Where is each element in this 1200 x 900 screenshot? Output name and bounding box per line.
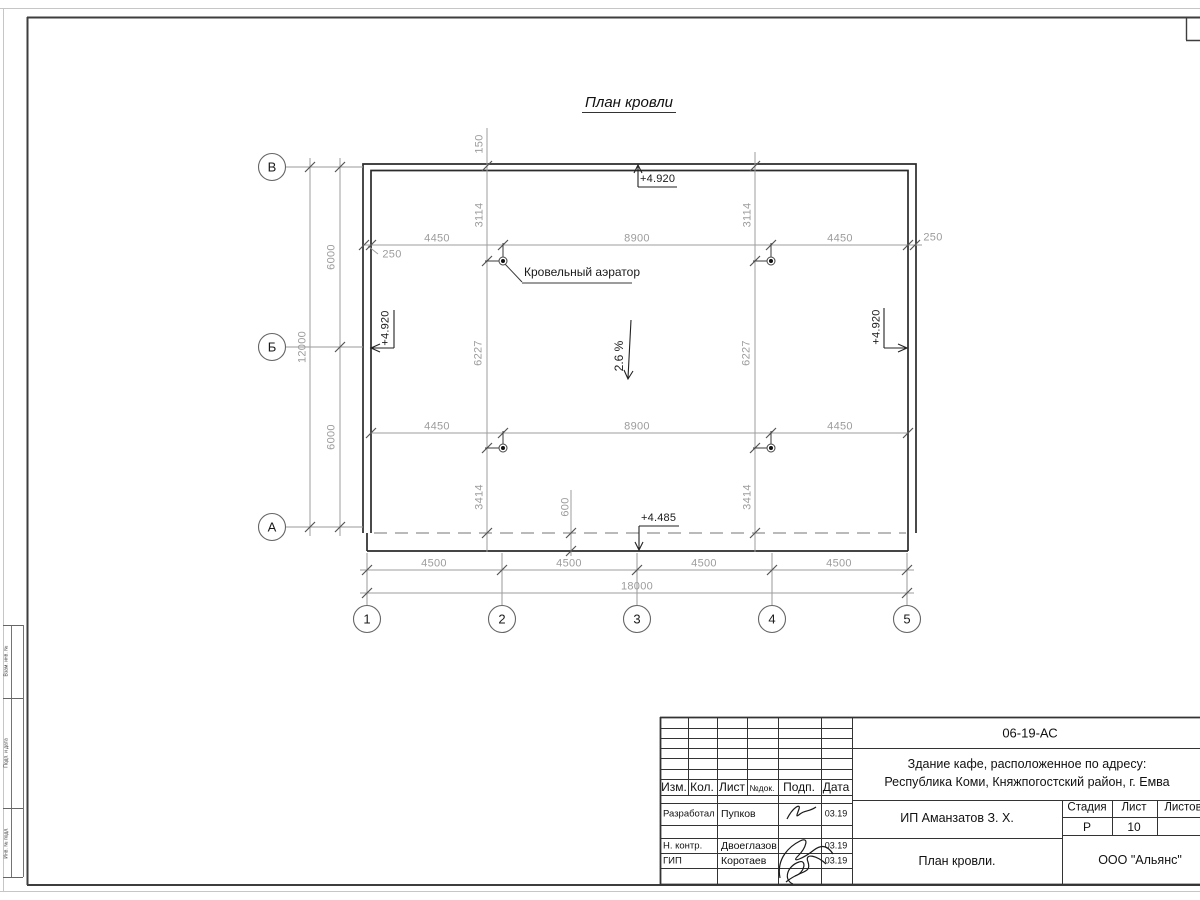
col-podp: Подп. [783, 781, 815, 793]
stage-value: Р [1083, 821, 1091, 833]
margin-stamp-label-3: Инв. № подл. [5, 827, 10, 858]
dim-top-4450-right: 4450 [827, 234, 853, 245]
sheet-number: 10 [1127, 821, 1140, 833]
dim-bottom-4500-3: 4500 [691, 559, 717, 570]
frame-corner-box [1186, 18, 1200, 41]
row-date-ncontrol: 03.19 [825, 842, 848, 851]
row-date-developed: 03.19 [825, 810, 848, 819]
dim-colR-3114: 3114 [743, 203, 754, 228]
axis-label-1: 1 [363, 613, 370, 626]
elevation-left: +4.920 [381, 310, 392, 345]
row-role-ncontrol: Н. контр. [663, 841, 702, 851]
col-kol: Кол. [690, 781, 714, 793]
row-name-gip: Коротаев [721, 856, 766, 867]
dim-top-250-left: 250 [382, 250, 401, 261]
dim-bottom-4500-2: 4500 [556, 559, 582, 570]
col-list: Лист [719, 781, 745, 793]
dim-bottom-4500-1: 4500 [421, 559, 447, 570]
project-address-line1: Здание кафе, расположенное по адресу: [908, 758, 1147, 771]
axis-label-a: А [268, 521, 277, 534]
client-name: ИП Аманзатов З. Х. [900, 812, 1014, 825]
dim-colR-6227: 6227 [742, 340, 753, 366]
axis-circles [259, 154, 921, 633]
col-ndok: №док. [750, 784, 775, 793]
dim-mid-8900: 8900 [624, 422, 650, 433]
roof-walls [363, 164, 916, 551]
axis-label-3: 3 [633, 613, 640, 626]
dim-total-18000: 18000 [621, 582, 653, 593]
dim-top-250-right: 250 [923, 233, 942, 244]
row-name-developed: Пупков [721, 809, 756, 820]
dim-colR-3414: 3414 [743, 484, 754, 510]
aerator-label: Кровельный аэратор [524, 266, 640, 278]
axis-label-5: 5 [903, 613, 910, 626]
slope-label: 2.6 % [613, 341, 625, 372]
row-date-gip: 03.19 [825, 857, 848, 866]
dim-colL-6227: 6227 [474, 340, 485, 366]
axis-label-4: 4 [768, 613, 775, 626]
dim-mid-4450-left: 4450 [424, 422, 450, 433]
col-stadia: Стадия [1067, 802, 1106, 814]
dim-colL-3114: 3114 [475, 203, 486, 228]
elevation-arrows [371, 165, 907, 550]
dim-mid-4450-right: 4450 [827, 422, 853, 433]
row-role-developed: Разработал [663, 809, 715, 819]
elevation-right: +4.920 [872, 309, 883, 344]
dim-top-4450-left: 4450 [424, 234, 450, 245]
col-sheet: Лист [1122, 802, 1147, 814]
dim-left-6000-bottom: 6000 [327, 424, 338, 450]
col-izm: Изм. [661, 781, 687, 793]
row-name-ncontrol: Двоеглазов [721, 841, 777, 852]
axis-label-2: 2 [498, 613, 505, 626]
axis-label-v: В [268, 161, 277, 174]
row-role-gip: ГИП [663, 856, 682, 866]
company-name: ООО "Альянс" [1098, 854, 1182, 867]
col-sheets-total: Листов [1164, 802, 1200, 814]
elevation-top: +4.920 [640, 174, 675, 185]
dim-colL-150: 150 [475, 134, 486, 153]
drawing-name: План кровли. [918, 855, 995, 868]
col-data: Дата [823, 781, 850, 793]
doc-number: 06-19-АС [1002, 727, 1057, 740]
margin-stamp-label-1: Взам. инв. № [5, 646, 10, 677]
dim-total-12000: 12000 [298, 331, 309, 363]
elevation-bottom: +4.485 [641, 513, 676, 524]
drawing-frame [27, 17, 1200, 885]
dim-colL-3414: 3414 [475, 484, 486, 510]
drawing-sheet: План кровли 4450 8900 4450 250 250 4450 … [0, 0, 1200, 900]
dim-left-6000-top: 6000 [327, 244, 338, 270]
axis-label-b: Б [268, 341, 277, 354]
drawing-title: План кровли [582, 95, 676, 113]
dim-bottom-4500-4: 4500 [826, 559, 852, 570]
dim-overhang-600: 600 [561, 497, 572, 516]
dim-top-8900: 8900 [624, 234, 650, 245]
margin-stamp-label-2: Подп. и дата [5, 738, 10, 767]
project-address-line2: Республика Коми, Княжпогостский район, г… [884, 776, 1169, 789]
axis-lines [285, 167, 907, 605]
